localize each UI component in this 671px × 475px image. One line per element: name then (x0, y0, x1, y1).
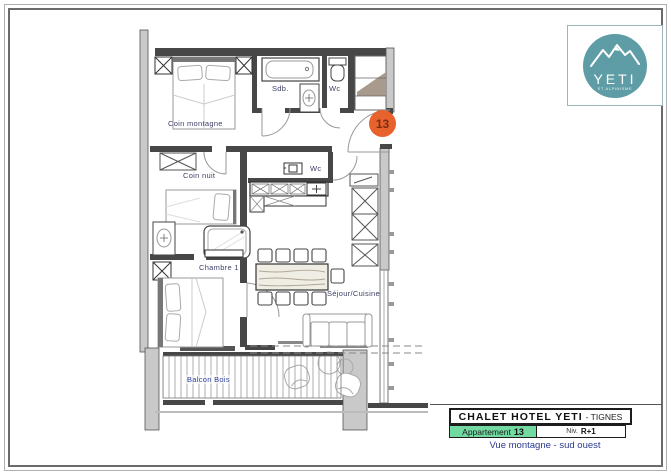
hotel-location: - TIGNES (586, 412, 623, 422)
apartment-label: Appartement (462, 427, 511, 437)
apartment-cell: Appartement 13 (449, 425, 537, 438)
label-coin-nuit: Coin nuit (183, 171, 215, 180)
floor-plan-canvas: Coin montagne Sdb. Wc Coin nuit Wc Chamb… (0, 0, 671, 475)
apartment-number: 13 (514, 427, 524, 437)
label-wc-top: Wc (329, 84, 340, 93)
dining-table (256, 264, 328, 290)
entry-closet (355, 56, 386, 110)
nightstand-chambre1 (153, 262, 171, 280)
console-chambre1 (205, 250, 243, 257)
wardrobe-coin-nuit (160, 153, 196, 170)
mountain-icon (589, 42, 641, 68)
sofa (303, 314, 372, 347)
level-cell: Niv. R+1 (537, 425, 626, 438)
level-value: R+1 (581, 427, 596, 436)
view-caption: Vue montagne - sud ouest (455, 440, 635, 451)
label-sejour-cuisine: Séjour/Cuisine (327, 289, 380, 298)
hotel-name: CHALET HOTEL YETI (459, 411, 583, 423)
label-balcon-bois: Balcon Bois (186, 375, 231, 384)
logo-subtext: ET ALPINISME (598, 86, 632, 91)
apartment-number-badge: 13 (369, 110, 396, 137)
bathtub (262, 58, 319, 81)
title-block-separator (430, 404, 662, 405)
bed-single (166, 190, 236, 224)
washbasin-2 (153, 222, 175, 255)
logo-name: YETI (593, 74, 636, 85)
title-block-row: Appartement 13 Niv. R+1 (449, 425, 626, 438)
wardrobes-sejour (350, 174, 378, 266)
label-chambre1: Chambre 1 (199, 263, 239, 272)
logo-circle: YETI ET ALPINISME (583, 34, 647, 98)
bed-double-chambre1 (158, 278, 223, 347)
yeti-logo: YETI ET ALPINISME (567, 25, 663, 106)
label-coin-montagne: Coin montagne (168, 119, 223, 128)
kitchen-counter (250, 182, 328, 212)
label-sdb: Sdb. (272, 84, 289, 93)
wc2-basin-icon (284, 163, 302, 174)
level-label: Niv. (566, 428, 578, 435)
label-wc-mid: Wc (310, 164, 321, 173)
toilet (329, 58, 346, 81)
title-block-name: CHALET HOTEL YETI - TIGNES (449, 408, 632, 425)
washbasin-sdb (300, 84, 319, 112)
